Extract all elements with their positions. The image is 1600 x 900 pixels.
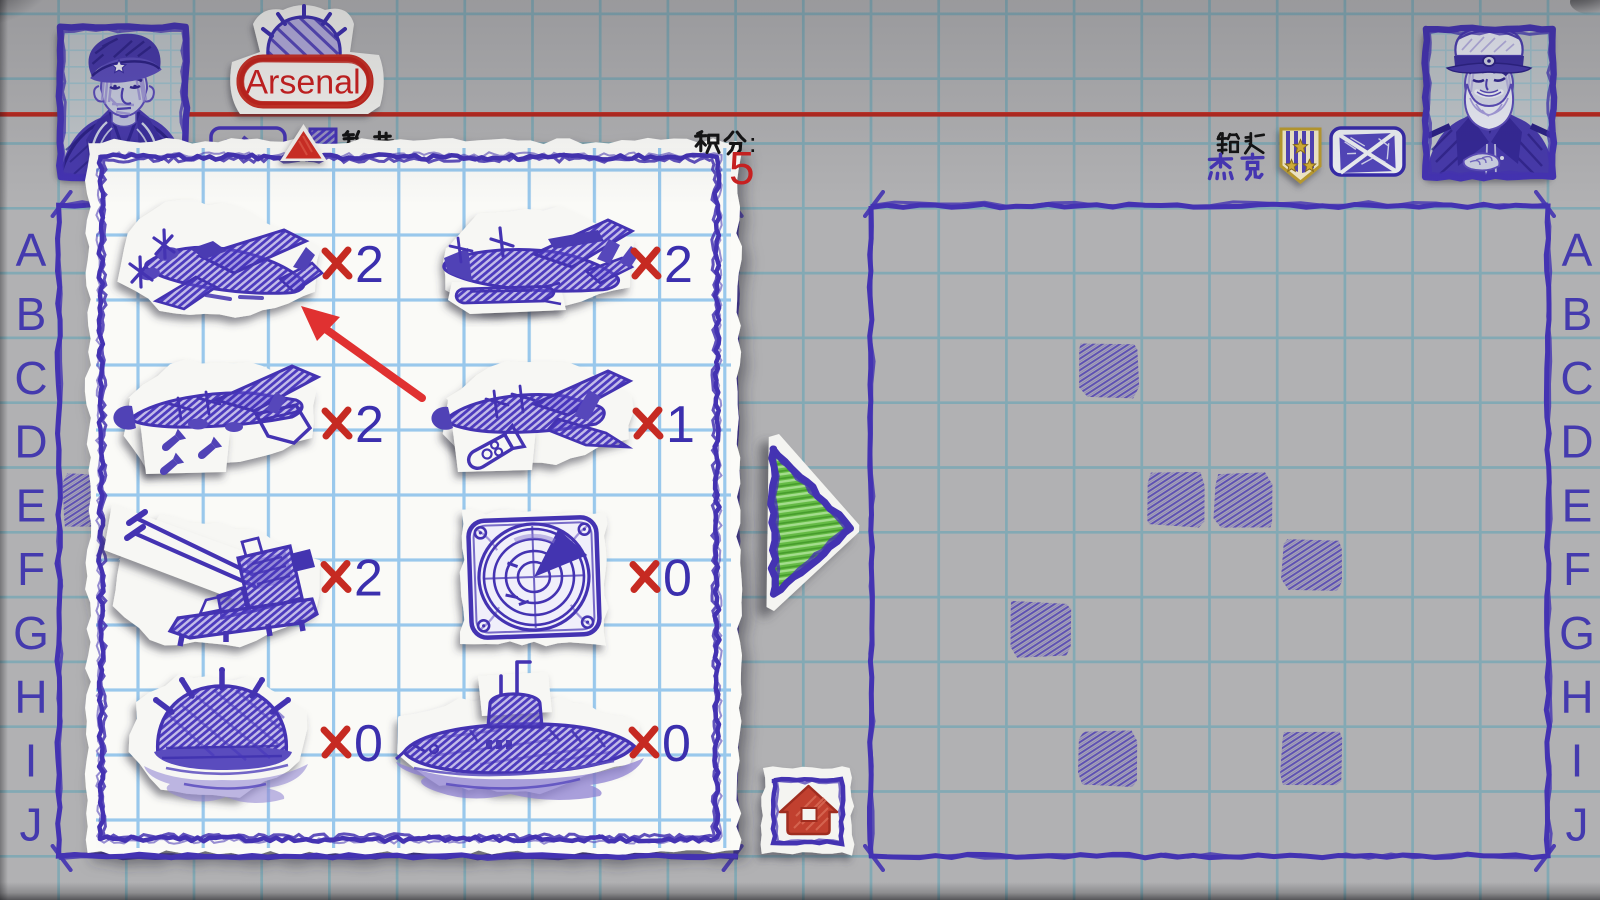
svg-text:E: E: [1562, 479, 1593, 531]
svg-text:B: B: [1562, 288, 1593, 340]
svg-text:A: A: [1562, 224, 1593, 276]
svg-text:D: D: [1560, 416, 1593, 468]
svg-text:H: H: [14, 671, 47, 723]
svg-text:I: I: [25, 735, 38, 787]
svg-text:2: 2: [664, 236, 693, 294]
svg-text:G: G: [1559, 607, 1595, 659]
svg-text:F: F: [17, 543, 45, 595]
svg-text:1: 1: [666, 396, 695, 454]
svg-text:J: J: [1566, 798, 1589, 850]
svg-text:0: 0: [662, 715, 691, 773]
svg-text:2: 2: [355, 236, 384, 294]
svg-text:F: F: [1563, 543, 1591, 595]
svg-text:G: G: [13, 607, 49, 659]
svg-text:2: 2: [354, 550, 383, 608]
svg-text:D: D: [14, 416, 47, 468]
svg-text:J: J: [20, 798, 43, 850]
svg-text:C: C: [1560, 352, 1593, 404]
svg-text:0: 0: [354, 715, 383, 773]
svg-text:0: 0: [663, 550, 692, 608]
svg-text:H: H: [1560, 671, 1593, 723]
svg-text:A: A: [16, 224, 47, 276]
svg-text:2: 2: [355, 396, 384, 454]
svg-text:I: I: [1571, 735, 1584, 787]
svg-text:B: B: [16, 288, 47, 340]
svg-text:E: E: [16, 479, 47, 531]
svg-text:C: C: [14, 352, 47, 404]
